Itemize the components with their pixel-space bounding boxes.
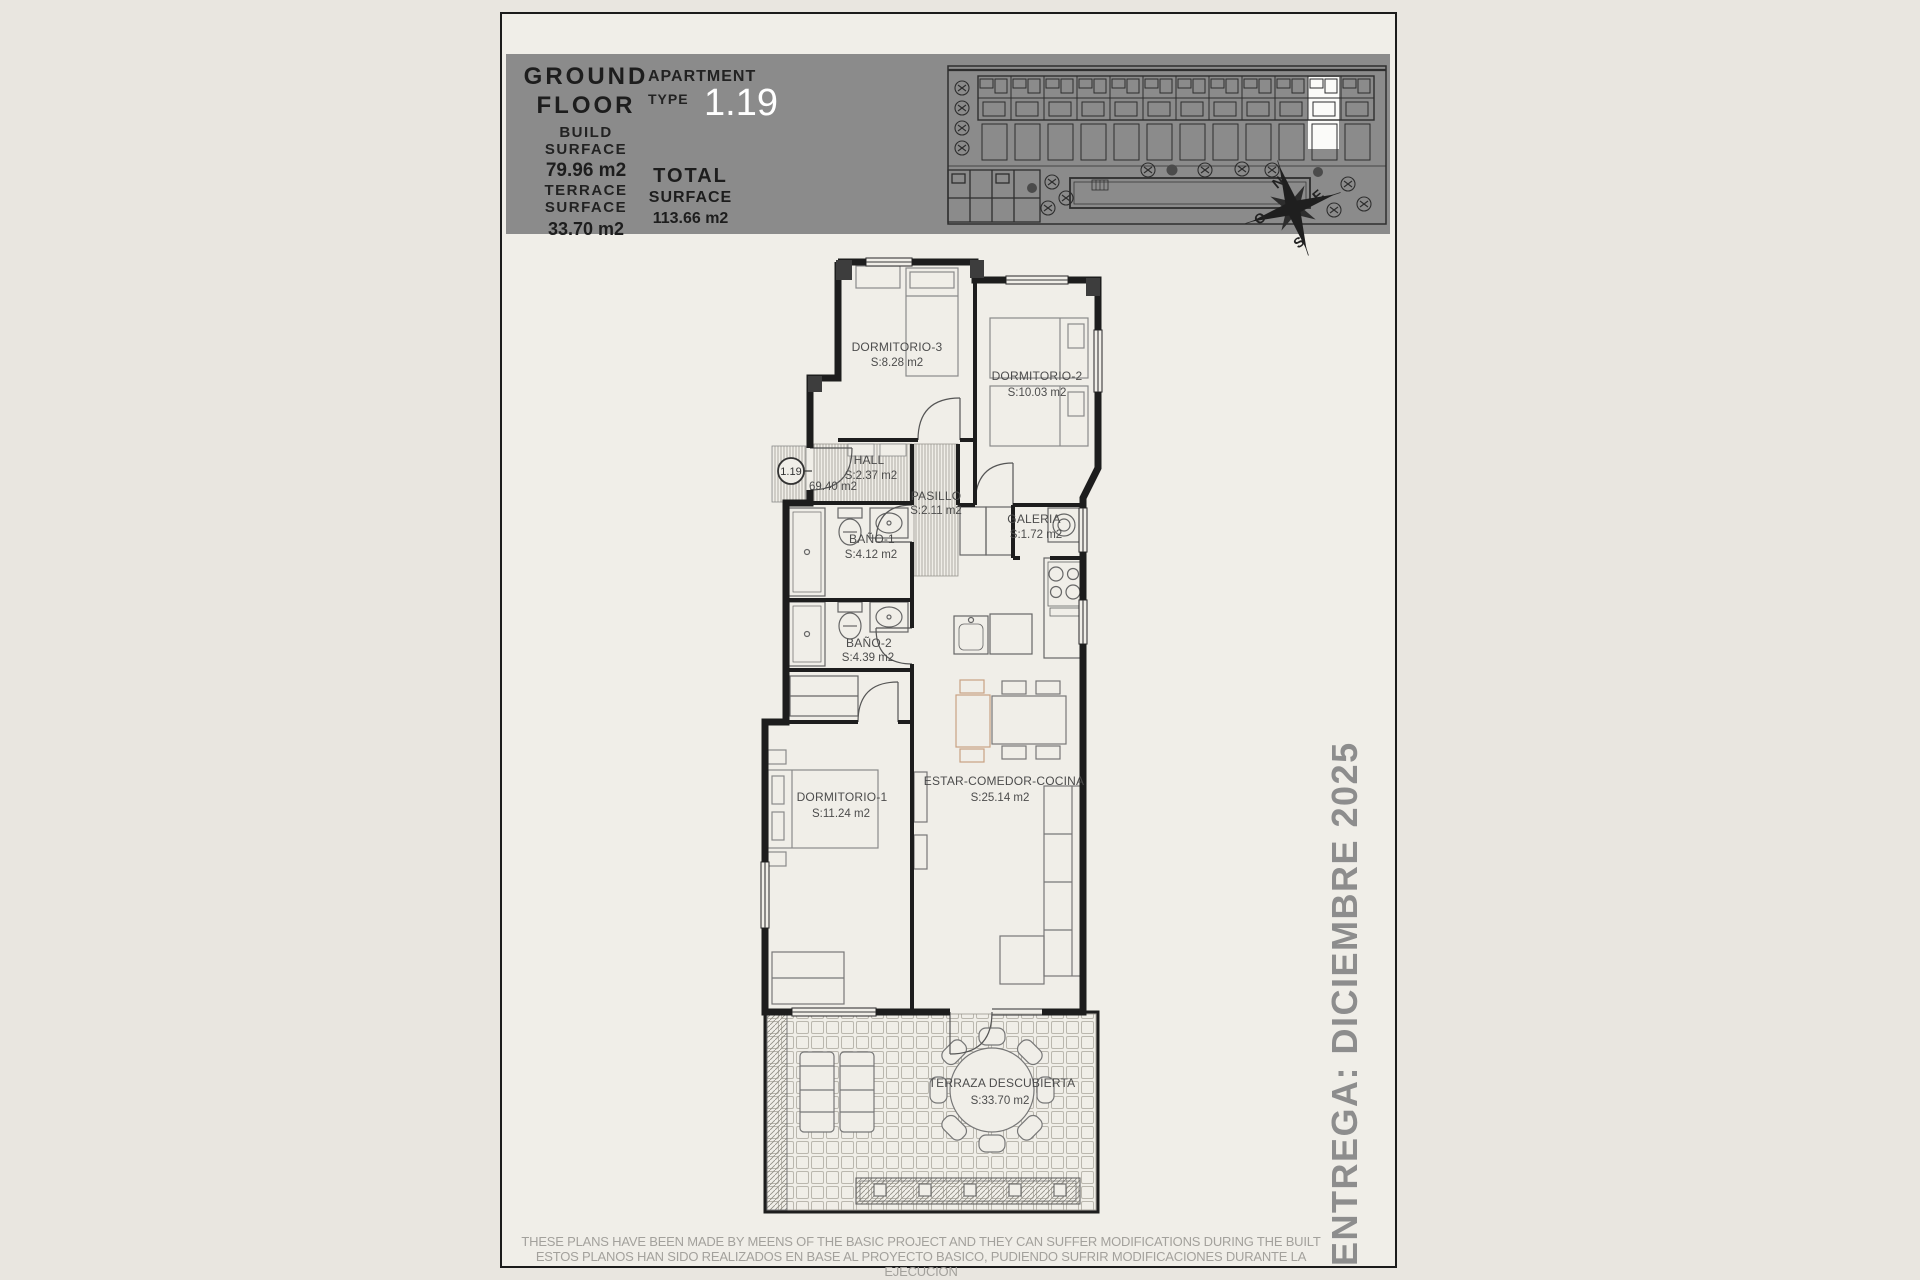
unit-area-note: 69.40 m2	[809, 481, 857, 493]
kitchen-fixtures	[954, 558, 1083, 658]
room-label-hall: HALL	[854, 453, 885, 467]
site-lower-building	[948, 170, 1040, 222]
room-area-dormitorio2: S:10.03 m2	[1008, 387, 1067, 399]
room-label-bano2: BAÑO-2	[846, 636, 892, 650]
room-label-pasillo: PASILLO	[911, 489, 962, 503]
terrace-planter-strip	[767, 1014, 787, 1210]
room-area-dormitorio1: S:11.24 m2	[812, 808, 870, 820]
room-label-dormitorio3: DORMITORIO-3	[852, 340, 943, 354]
room-label-dormitorio2: DORMITORIO-2	[992, 369, 1083, 383]
room-label-bano1: BAÑO-1	[849, 532, 895, 546]
floor-plan: 1.19 69.40 m2 DORMITORIO-3 S:8.28 m2 DOR…	[761, 258, 1102, 1212]
room-label-estar: ESTAR-COMEDOR-COCINA	[924, 774, 1084, 788]
unit-badge: 1.19	[778, 458, 812, 484]
bed-dormitorio1	[768, 750, 878, 1004]
room-label-dormitorio1: DORMITORIO-1	[797, 790, 888, 804]
unit-badge-number: 1.19	[780, 466, 801, 478]
room-area-hall: S:2.37 m2	[845, 470, 897, 482]
plan-sheet: GROUND FLOOR BUILD SURFACE 79.96 m2 TERR…	[0, 0, 1920, 1280]
drawing-layer: N E O S	[0, 0, 1920, 1280]
room-area-estar: S:25.14 m2	[971, 792, 1030, 804]
terrace	[765, 1012, 1098, 1212]
room-label-terraza: TERRAZA DESCUBIERTA	[929, 1076, 1076, 1090]
room-area-dormitorio3: S:8.28 m2	[871, 357, 923, 369]
site-trees-left	[955, 81, 969, 155]
terrace-planter	[856, 1178, 1080, 1204]
room-area-pasillo: S:2.11 m2	[910, 505, 962, 517]
room-area-bano1: S:4.12 m2	[845, 549, 897, 561]
compass-west-label: O	[1250, 208, 1269, 227]
room-area-galeria: S:1.72 m2	[1010, 529, 1062, 541]
dining-set	[956, 680, 1066, 762]
room-area-bano2: S:4.39 m2	[842, 652, 894, 664]
room-label-galeria: GALERIA	[1007, 512, 1060, 526]
room-area-terraza: S:33.70 m2	[971, 1095, 1030, 1107]
